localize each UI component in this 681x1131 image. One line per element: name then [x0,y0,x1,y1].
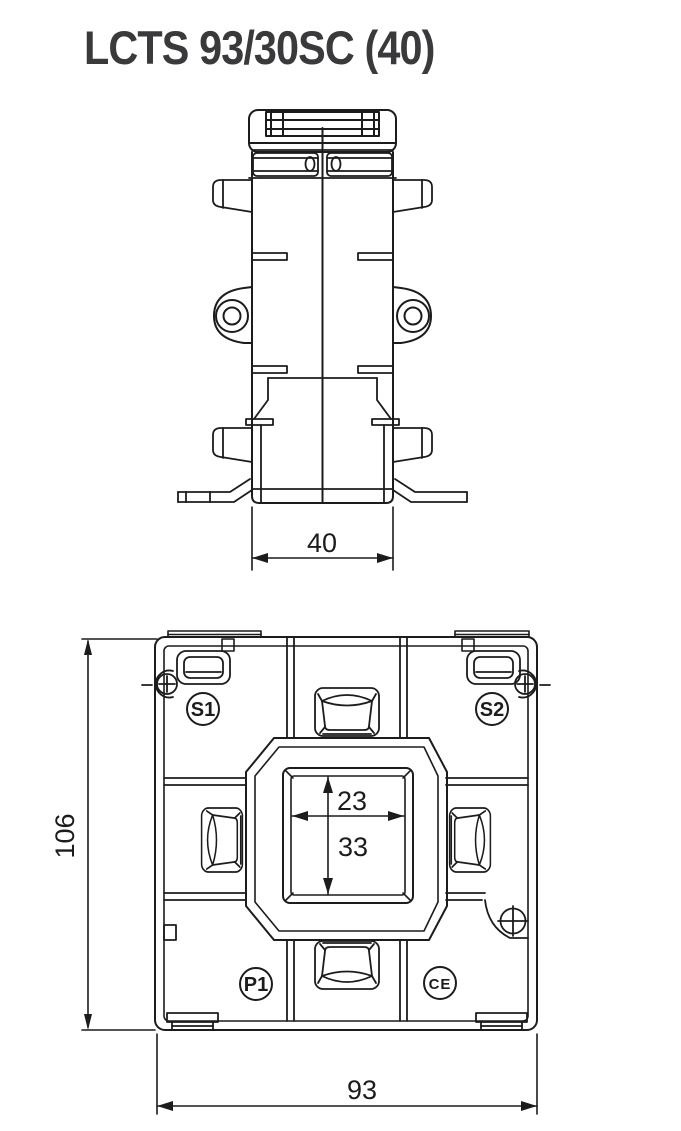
dim-93-value: 93 [347,1075,377,1105]
terminal-p1-text: P1 [244,974,268,996]
mounting-ear-right [393,287,431,343]
dimension-23: 23 [292,786,404,821]
boss-top [315,688,379,736]
terminal-s1-text: S1 [191,699,215,721]
terminal-label-p1: P1 [240,968,272,1000]
terminal-label-s2: S2 [476,693,508,725]
screw-bottom-right [485,900,528,938]
side-view: 40 [178,110,467,570]
ce-mark: CE [424,967,456,999]
front-view: S1 S2 P1 CE 106 [50,631,550,1114]
left-wall-clip [164,925,176,940]
terminal-label-s1: S1 [187,693,219,725]
dimension-93: 93 [157,1034,537,1114]
dim-106-value: 106 [50,813,80,858]
dim-23-value: 23 [337,786,367,816]
top-lips [168,631,529,651]
top-slot-left [177,651,230,684]
dimension-106: 106 [50,639,157,1030]
technical-drawing-page: LCTS 93/30SC (40) [0,0,681,1131]
ce-mark-text: CE [429,976,452,993]
drawing-canvas: 40 [0,0,681,1131]
screw-top-right [515,671,550,698]
terminal-s2-text: S2 [480,699,504,721]
boss-right [450,808,491,872]
dim-40-value: 40 [307,528,337,558]
boss-left [202,808,243,872]
top-slot-right [467,651,520,684]
dim-33-value: 33 [338,832,368,862]
mounting-ear-left [214,287,252,343]
dimension-40: 40 [252,507,393,570]
screw-top-left [142,671,177,698]
boss-bottom [315,941,379,989]
body-outline [252,128,393,503]
